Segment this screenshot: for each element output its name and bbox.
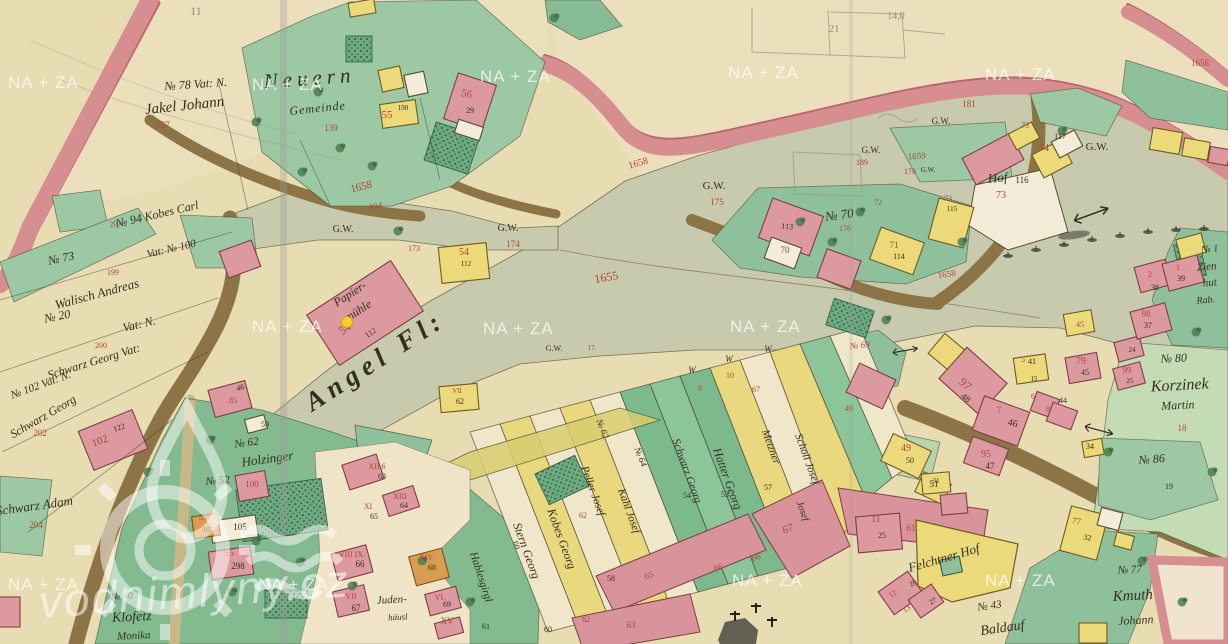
map-label: № 77 [1116, 563, 1142, 576]
map-label: 5 [1021, 355, 1025, 364]
map-label: 99 [1123, 365, 1133, 375]
map-label: 11 [872, 514, 881, 524]
large-outlined-building [1152, 560, 1228, 644]
map-label: 14,0 [887, 11, 905, 22]
map-label: 70 [781, 245, 791, 255]
map-label: 174 [506, 239, 520, 249]
map-label: 2 [1148, 270, 1152, 279]
watermark-tile-text: NA + ZA [8, 73, 79, 92]
map-label: 29 [466, 106, 474, 115]
map-label: Monika [116, 629, 152, 643]
map-label: 47 [986, 461, 996, 471]
map-label: G.W. [546, 344, 563, 353]
watermark-tile-text: NA + ZA [480, 67, 551, 86]
map-label: 55 [382, 109, 394, 121]
map-label: 15 [1031, 375, 1039, 383]
map-label: 98 [1142, 309, 1152, 319]
map-label: 45 [1081, 368, 1089, 377]
map-label: 204 [29, 520, 43, 530]
map-label: 32 [1083, 532, 1092, 542]
map-label: 139 [324, 123, 338, 133]
map-label: 173 [408, 244, 420, 253]
map-label: 17. [588, 344, 597, 352]
map-label: 39 [1177, 274, 1185, 283]
map-label: 18 [1178, 423, 1188, 433]
map-label: XIII [393, 492, 407, 501]
map-label: 21 [829, 23, 840, 35]
map-label: № 80 [1159, 350, 1187, 365]
map-label: 58 [607, 574, 615, 583]
map-label: 62 [579, 511, 587, 520]
map-label: G.W. [333, 224, 354, 235]
watermark-tile-text: NA + ZA [252, 317, 323, 336]
garden-patch [346, 36, 372, 62]
building [1208, 146, 1228, 165]
map-label: 71 [890, 240, 899, 250]
map-label: 66 [356, 559, 366, 569]
map-label: 194 [368, 200, 383, 212]
map-fold-line-2 [849, 0, 853, 644]
map-label: 44 [1059, 396, 1067, 405]
building [940, 493, 968, 515]
map-label: № 1 [1200, 243, 1219, 256]
map-label: häusl [388, 611, 408, 622]
map-label: Johann [1118, 612, 1154, 628]
map-label: 38 [1151, 283, 1159, 292]
map-label: 200 [95, 341, 107, 350]
building [378, 66, 404, 92]
map-label: 115 [947, 205, 958, 213]
map-label: G.W. [932, 116, 951, 126]
map-label: 8 [698, 384, 702, 393]
building [404, 71, 428, 97]
map-label: G.W. [862, 145, 881, 155]
map-label: XV [441, 616, 454, 626]
watermark-tile-text: NA + ZA [728, 63, 799, 82]
building [1182, 138, 1211, 160]
map-label: Hof [986, 169, 1010, 186]
map-label: 37 [1144, 321, 1152, 330]
map-label: VI. [435, 593, 445, 602]
map-label: XII 6 [368, 462, 385, 471]
map-label: hut [1202, 276, 1218, 289]
map-label: 51 [930, 479, 939, 489]
building [1149, 128, 1182, 155]
map-label: 116 [1015, 175, 1029, 185]
map-label: 190 [398, 104, 409, 112]
watermark-tile-text: NA + ZA [730, 317, 801, 336]
map-label: 25 [1127, 377, 1135, 385]
map-label: Juden- [377, 593, 408, 607]
map-label: 181 [962, 99, 976, 109]
map-label: 59 [261, 420, 269, 429]
map-label: 79 [1076, 356, 1086, 367]
map-label: G.W. [1086, 141, 1109, 153]
map-label: 175 [710, 197, 724, 207]
map-viewport[interactable]: № 78 Vat: N.Jakel JohannNeuernGemeinde№ … [0, 0, 1228, 644]
map-label: 68 [428, 563, 436, 572]
map-label: 85 [229, 396, 237, 405]
map-label: 10 [726, 371, 734, 380]
map-label: 67 [352, 603, 362, 613]
map-label: 61 [907, 523, 916, 533]
map-label: 53 [721, 490, 729, 499]
map-label: № 86 [1137, 451, 1165, 467]
map-label: 64 [400, 501, 408, 510]
watermark-tile-text: NA + ZA [252, 75, 323, 94]
map-label: 7 [997, 405, 1002, 415]
map-label: 67 [752, 385, 760, 394]
map-label: Korzinek [1149, 375, 1209, 395]
map-label: Rab. [1195, 294, 1215, 307]
map-label: 202 [33, 428, 47, 438]
map-label: 19 [1165, 482, 1173, 491]
map-label: 199 [107, 268, 119, 277]
map-label: 60 [544, 625, 552, 634]
map-label: 1658 [1191, 58, 1210, 68]
map-label: 157 [156, 120, 170, 130]
map-label: 25 [878, 531, 886, 540]
map-label: 62 [582, 615, 590, 624]
map-label: 73 [944, 194, 952, 203]
map-label: 74 [1039, 143, 1049, 154]
watermark-tile-text: NA + ZA [985, 65, 1056, 84]
map-label: 6 [1031, 392, 1035, 401]
map-label: 61 [482, 622, 490, 631]
map-label: 73 [1021, 121, 1029, 130]
cadastral-map-canvas[interactable]: № 78 Vat: N.Jakel JohannNeuernGemeinde№ … [0, 0, 1228, 644]
building [1079, 623, 1107, 643]
watermark-tile-text: NA + ZA [732, 571, 803, 590]
map-label: 57 [764, 483, 772, 492]
map-label: 54 [683, 491, 691, 500]
map-label: XI [364, 502, 373, 511]
map-label: Zien [1196, 260, 1217, 274]
map-label: 1659 [907, 150, 926, 162]
map-label: 73 [996, 190, 1006, 201]
map-label: G.W. [921, 166, 936, 174]
map-label: VII [452, 387, 462, 395]
map-label: 63 [627, 620, 637, 630]
map-label: 95 [981, 449, 991, 460]
map-label: 178 [904, 167, 916, 176]
map-label: 8 [1046, 405, 1050, 414]
map-label: Kmuth [1111, 587, 1153, 605]
map-label: 45 [1076, 320, 1084, 329]
map-label: 50 [906, 456, 914, 465]
map-label: Martin [1160, 397, 1195, 413]
watermark-tile-text: NA + ZA [483, 319, 554, 338]
building [0, 597, 20, 627]
map-label: 189 [856, 158, 868, 167]
map-label: 72 [874, 198, 882, 207]
map-label: 63 [378, 472, 386, 481]
map-label: 1 [1176, 263, 1180, 272]
map-label: 62 [456, 397, 464, 406]
map-label: 24 [1129, 346, 1137, 354]
selected-point-marker[interactable] [342, 317, 353, 328]
map-label: 41 [1028, 357, 1036, 366]
map-label: G.W. [703, 180, 726, 192]
map-label: 114 [893, 252, 905, 261]
watermark-tile-text: NA + ZA [985, 571, 1056, 590]
map-label: 113 [781, 222, 793, 232]
map-label: 112 [461, 260, 472, 268]
map-label: 34 [1086, 442, 1094, 451]
map-label: XIV [419, 553, 433, 562]
map-label: 49 [901, 443, 911, 454]
map-label: 100 [245, 479, 259, 489]
map-label: 117 [1054, 132, 1066, 141]
map-label: G.W. [498, 223, 519, 234]
map-label: 11 [190, 4, 202, 18]
map-label: 65 [370, 512, 378, 521]
map-label: 54 [459, 247, 469, 258]
